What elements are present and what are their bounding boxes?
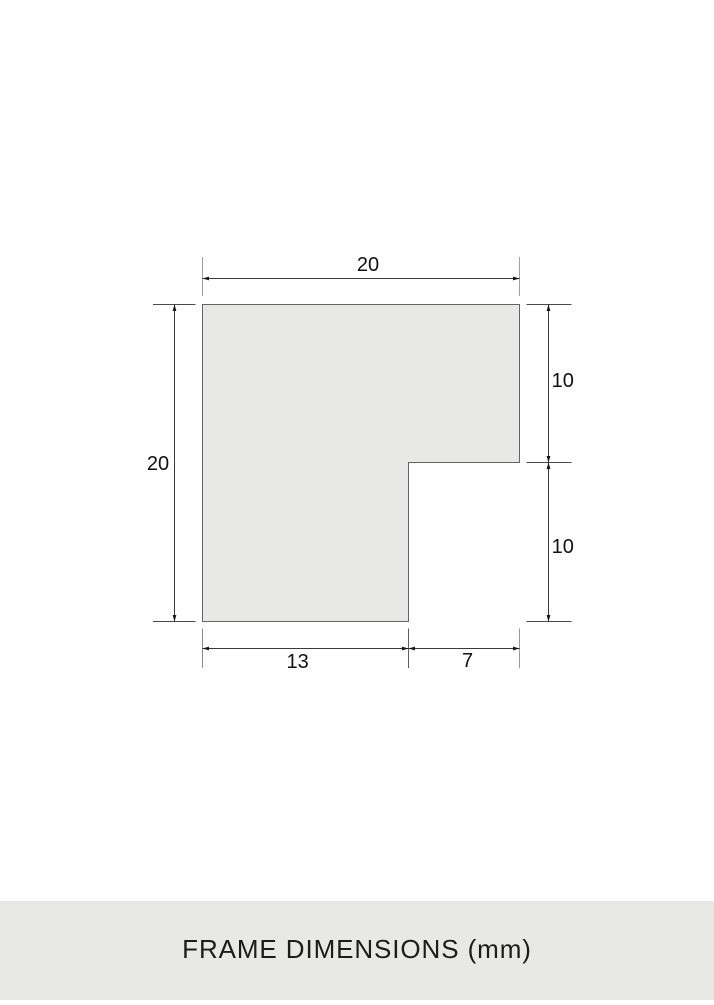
svg-text:13: 13	[286, 651, 308, 673]
svg-text:10: 10	[552, 536, 574, 558]
svg-text:10: 10	[552, 370, 574, 392]
svg-text:7: 7	[462, 650, 473, 672]
svg-text:20: 20	[147, 453, 169, 475]
svg-text:FRAME DIMENSIONS (mm): FRAME DIMENSIONS (mm)	[182, 934, 532, 964]
svg-text:20: 20	[357, 254, 379, 276]
